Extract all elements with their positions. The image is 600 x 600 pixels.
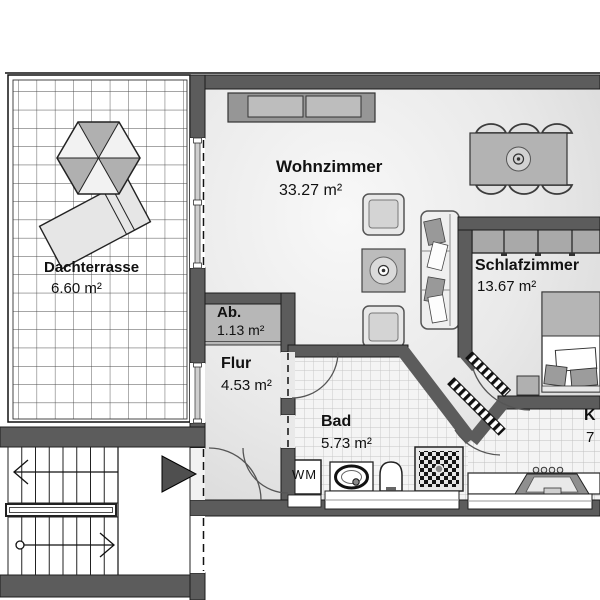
room-area-dachterrasse: 6.60 m² bbox=[51, 281, 102, 298]
washing-machine-label: WM bbox=[292, 468, 317, 482]
room-label-abstellraum: Ab. bbox=[217, 305, 241, 322]
coffee-table bbox=[362, 249, 405, 292]
room-area-schlafzimmer: 13.67 m² bbox=[477, 279, 536, 296]
toilet bbox=[380, 462, 402, 491]
table-centerpiece bbox=[507, 147, 531, 171]
armchair-bottom bbox=[363, 306, 404, 347]
room-area-bad: 5.73 m² bbox=[321, 436, 372, 453]
room-label-kueche: K bbox=[584, 407, 596, 425]
room-area-wohnzimmer: 33.27 m² bbox=[279, 182, 342, 200]
nightstand bbox=[517, 376, 539, 395]
floor-plan: Dachterrasse 6.60 m² Wohnzimmer 33.27 m²… bbox=[0, 0, 600, 600]
balcony-door bbox=[190, 138, 205, 268]
bottom-windows bbox=[288, 491, 592, 509]
bed-duvet bbox=[542, 292, 600, 336]
flur-window bbox=[190, 363, 205, 423]
wohnzimmer-door-opening bbox=[281, 352, 295, 398]
room-label-flur: Flur bbox=[221, 355, 251, 373]
dining-set bbox=[470, 124, 572, 194]
armchair-top bbox=[363, 194, 404, 235]
sideboard bbox=[228, 93, 375, 122]
room-area-flur: 4.53 m² bbox=[221, 378, 272, 395]
room-label-wohnzimmer: Wohnzimmer bbox=[276, 158, 382, 177]
bed bbox=[542, 292, 600, 392]
bed-pillow bbox=[570, 368, 597, 387]
stairwell-side-opening bbox=[190, 516, 205, 573]
staircase bbox=[6, 447, 196, 575]
room-label-bad: Bad bbox=[321, 413, 351, 431]
dachterrasse-area bbox=[8, 75, 190, 422]
floor-plan-drawing bbox=[0, 0, 600, 600]
shower bbox=[415, 447, 463, 491]
room-area-abstellraum: 1.13 m² bbox=[217, 323, 264, 338]
washbasin bbox=[330, 462, 373, 491]
bad-door-opening bbox=[281, 415, 295, 448]
sofa bbox=[421, 211, 459, 329]
bed-pillow bbox=[544, 365, 567, 386]
room-label-schlafzimmer: Schlafzimmer bbox=[475, 257, 579, 275]
stair-handrail bbox=[6, 504, 116, 516]
room-area-kueche: 7 bbox=[586, 430, 594, 447]
room-label-dachterrasse: Dachterrasse bbox=[44, 260, 139, 277]
